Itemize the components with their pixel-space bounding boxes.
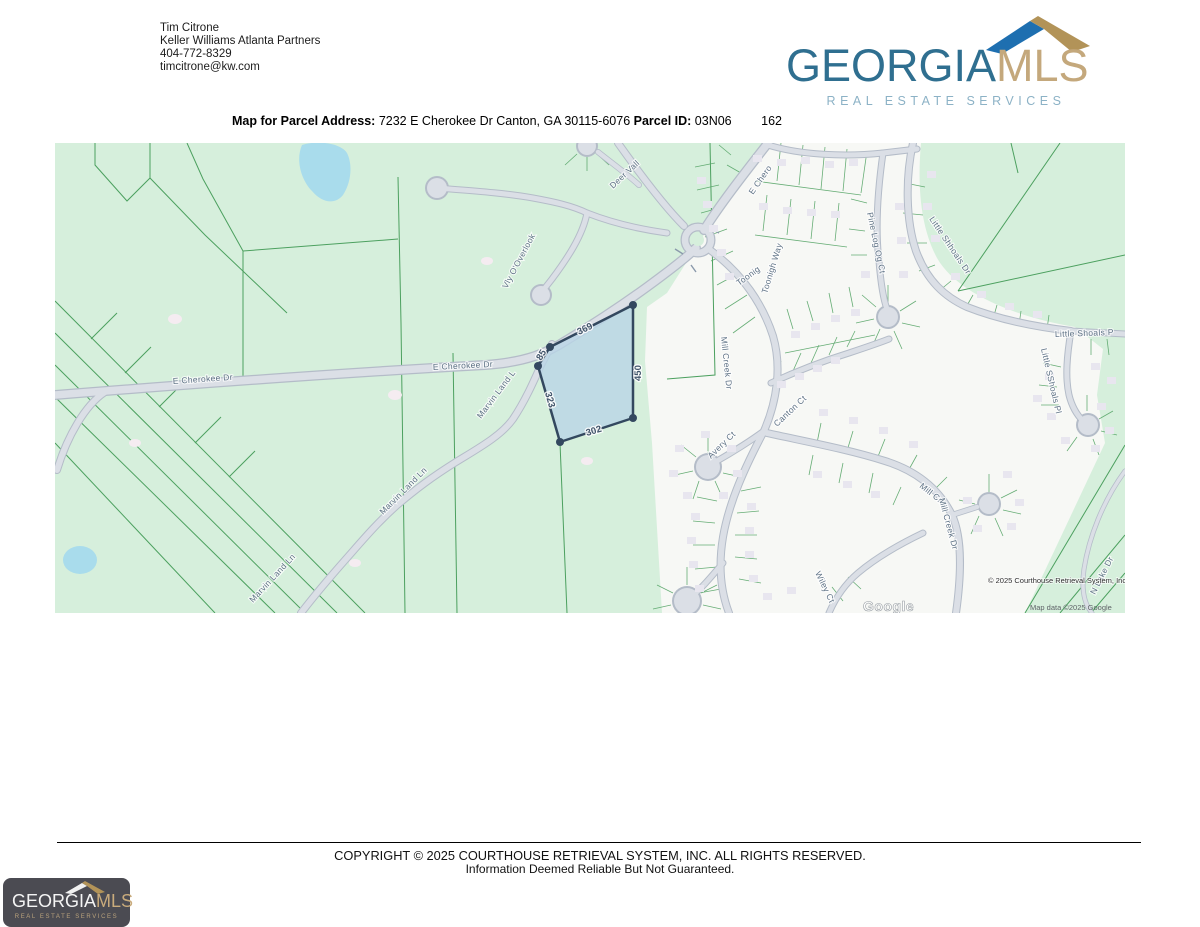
agent-phone: 404-772-8329: [160, 48, 320, 61]
address-label: Map for Parcel Address:: [232, 114, 375, 128]
footer-divider: [57, 842, 1141, 843]
footer-disclaimer: Information Deemed Reliable But Not Guar…: [5, 862, 1195, 876]
footer-copyright: COPYRIGHT © 2025 COURTHOUSE RETRIEVAL SY…: [5, 848, 1195, 863]
brand-secondary-text: MLS: [996, 40, 1089, 91]
google-logo: Google: [863, 598, 914, 613]
parcel-number: 162: [761, 114, 782, 128]
map-canvas: 369 85 323 302 450 E Cherokee Dr E Chero…: [55, 143, 1125, 613]
parcel-map-report: { "header": { "contact": { "name": "Tim …: [0, 0, 1200, 927]
agent-name: Tim Citrone: [160, 22, 320, 35]
brand-wordmark: GEORGIAMLS: [786, 40, 1088, 92]
courthouse-attribution: © 2025 Courthouse Retrieval System, Inc.: [988, 576, 1125, 585]
footer-brand-wordmark: GEORGIAMLS: [12, 891, 133, 912]
small-pond-icon: [63, 546, 97, 574]
parcel-edge-right: 450: [633, 365, 644, 381]
brand-tagline: REAL ESTATE SERVICES: [826, 94, 1066, 108]
footer-georgia-mls-logo: GEORGIAMLS REAL ESTATE SERVICES: [3, 878, 130, 927]
footer-brand-tagline: REAL ESTATE SERVICES: [3, 914, 130, 920]
parcel-map: 369 85 323 302 450 E Cherokee Dr E Chero…: [55, 143, 1125, 613]
parcel-id-value: 03N06: [695, 114, 732, 128]
footer-brand-secondary: MLS: [96, 891, 133, 911]
map-title: Map for Parcel Address: 7232 E Cherokee …: [232, 114, 782, 128]
roundabout-island: [692, 234, 704, 246]
parcel-id-label: Parcel ID:: [634, 114, 692, 128]
agent-company: Keller Williams Atlanta Partners: [160, 35, 320, 48]
georgia-mls-logo: GEORGIAMLS REAL ESTATE SERVICES: [786, 12, 1088, 112]
street-label-little-shoals-p: Little Shoals P: [1055, 327, 1114, 339]
map-data-attribution: Map data ©2025 Google: [1030, 603, 1112, 612]
address-value: 7232 E Cherokee Dr Canton, GA 30115-6076: [379, 114, 630, 128]
footer-brand-primary: GEORGIA: [12, 891, 96, 911]
agent-email: timcitrone@kw.com: [160, 61, 320, 74]
brand-primary-text: GEORGIA: [786, 40, 996, 91]
agent-contact-block: Tim Citrone Keller Williams Atlanta Part…: [160, 22, 320, 74]
